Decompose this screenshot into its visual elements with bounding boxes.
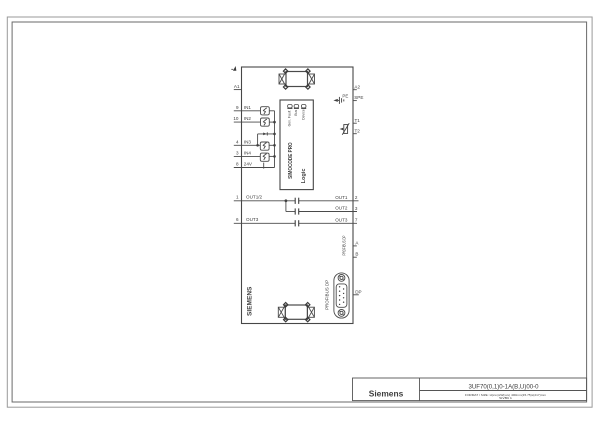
svg-text:IN1: IN1 <box>244 105 252 110</box>
svg-text:Gen. Fault: Gen. Fault <box>288 111 292 127</box>
svg-text:OUT1/2: OUT1/2 <box>246 195 263 200</box>
svg-text:IN2: IN2 <box>244 116 252 121</box>
svg-text:B: B <box>355 252 358 257</box>
svg-text:Device: Device <box>301 109 305 119</box>
svg-text:3: 3 <box>236 150 239 155</box>
svg-text:SPE: SPE <box>354 95 363 100</box>
svg-text:DP: DP <box>355 289 361 294</box>
svg-text:Siemens: Siemens <box>369 388 404 398</box>
svg-text:9: 9 <box>236 105 239 110</box>
svg-text:8: 8 <box>236 162 239 167</box>
svg-text:IN3: IN3 <box>244 139 252 144</box>
svg-text:PROFIBUS DP: PROFIBUS DP <box>325 280 330 310</box>
svg-text:2: 2 <box>355 195 358 200</box>
svg-text:A1: A1 <box>234 84 240 89</box>
svg-text:Bus: Bus <box>294 109 298 115</box>
svg-text:7: 7 <box>355 218 358 223</box>
svg-text:Logic: Logic <box>301 169 307 184</box>
svg-text:IN4: IN4 <box>244 150 252 155</box>
svg-text:OUT3: OUT3 <box>335 217 348 222</box>
svg-text:24V: 24V <box>244 162 253 167</box>
svg-text:SIMOCODE PRO: SIMOCODE PRO <box>288 142 294 179</box>
svg-text:OUT1: OUT1 <box>335 195 348 200</box>
svg-text:10: 10 <box>233 116 239 121</box>
svg-text:3UF70(0,1)0-1A(B,U)00-0: 3UF70(0,1)0-1A(B,U)00-0 <box>468 383 539 390</box>
svg-text:A2: A2 <box>354 84 360 89</box>
svg-text:1: 1 <box>236 195 239 200</box>
svg-text:OUT2: OUT2 <box>335 206 348 211</box>
svg-text:4: 4 <box>236 139 239 144</box>
svg-text:SIEMENS: SIEMENS <box>247 286 254 316</box>
svg-text:T1: T1 <box>355 118 361 123</box>
svg-text:6: 6 <box>236 217 239 222</box>
svg-text:PROFIBUS DP: PROFIBUS DP <box>341 235 346 255</box>
svg-text:T2: T2 <box>355 128 361 133</box>
svg-text:OUT3: OUT3 <box>246 217 259 222</box>
svg-text:3: 3 <box>355 206 358 211</box>
svg-text:Sh/Blt 1: Sh/Blt 1 <box>499 396 513 400</box>
svg-text:PE: PE <box>342 94 348 99</box>
